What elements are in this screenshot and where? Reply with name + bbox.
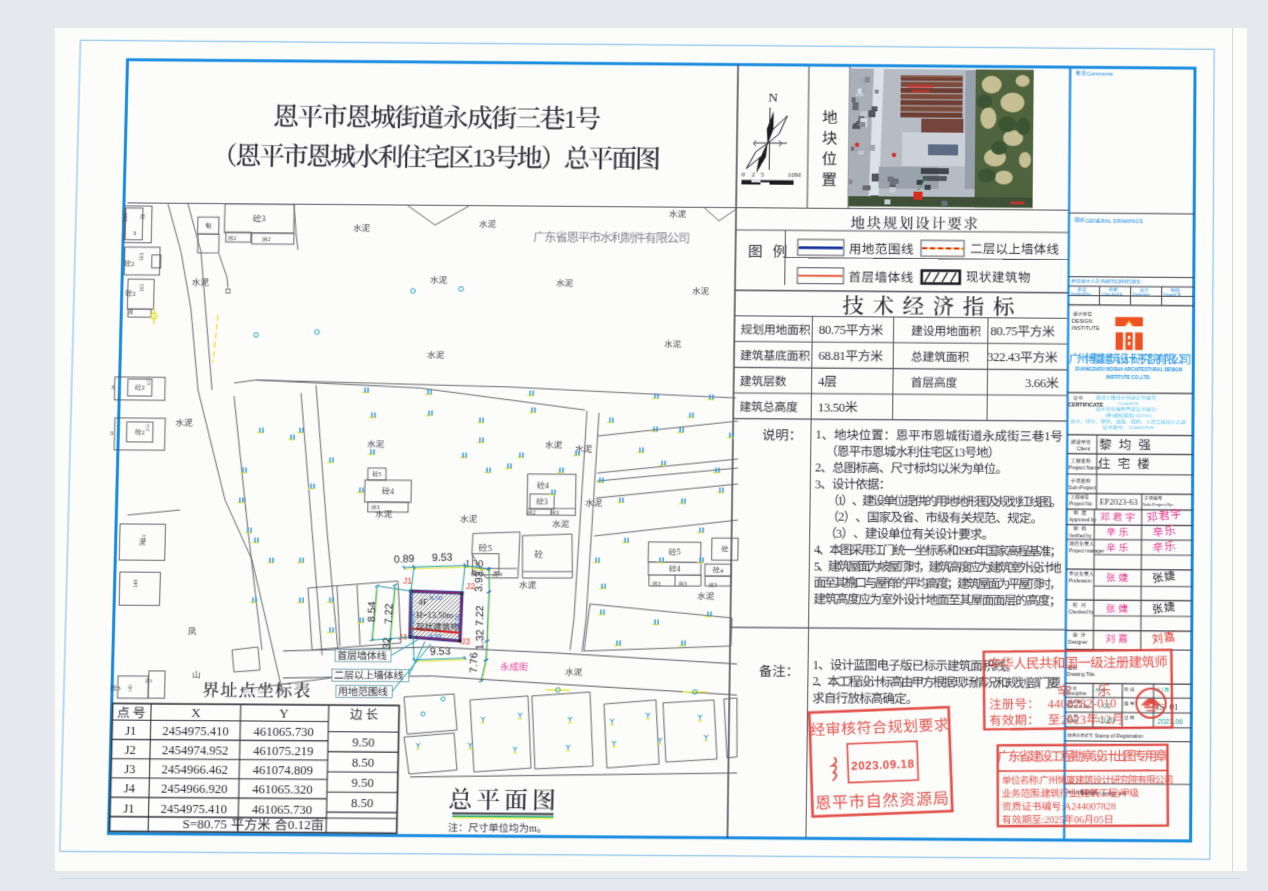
svg-text::: :	[1037, 776, 1039, 786]
svg-text:12: 12	[1099, 712, 1112, 726]
svg-text:2: 2	[131, 260, 135, 268]
svg-text:9.50: 9.50	[429, 632, 442, 640]
svg-text:2: 2	[838, 510, 844, 524]
svg-text:X: X	[191, 706, 202, 720]
svg-text:CERTIFICATE: CERTIFICATE	[1068, 403, 1104, 409]
svg-text:4400782-010: 4400782-010	[1048, 696, 1117, 711]
svg-text:8.50: 8.50	[453, 613, 461, 626]
svg-text:4: 4	[818, 375, 825, 389]
svg-text:4: 4	[677, 564, 681, 573]
svg-text:80.75: 80.75	[990, 325, 1017, 339]
svg-text:J4: J4	[124, 782, 136, 796]
svg-text:80.75: 80.75	[819, 323, 846, 337]
svg-text:13: 13	[954, 445, 966, 459]
svg-text:10M: 10M	[788, 171, 801, 179]
svg-text:9.50: 9.50	[351, 776, 373, 790]
svg-text:Verified by: Verified by	[1070, 291, 1091, 296]
svg-text:7.76: 7.76	[469, 652, 481, 673]
svg-text:322.43: 322.43	[987, 350, 1020, 364]
svg-text:461074.809: 461074.809	[253, 763, 313, 778]
svg-text::A244007828: :A244007828	[1061, 801, 1116, 812]
svg-text:9.50: 9.50	[352, 736, 374, 750]
svg-text:9.53: 9.53	[432, 552, 453, 564]
svg-text:8.50: 8.50	[409, 611, 417, 624]
svg-text:4: 4	[390, 487, 394, 496]
svg-text:INSTITUTE: INSTITUTE	[1072, 326, 1100, 332]
svg-text:1.32: 1.32	[475, 629, 487, 650]
svg-text:Project No.: Project No.	[1069, 502, 1093, 508]
svg-text:Stamp of Registration: Stamp of Registration	[1095, 734, 1144, 740]
svg-text:3: 3	[377, 505, 380, 511]
svg-text:157: 157	[147, 378, 152, 386]
svg-text:2: 2	[150, 679, 153, 684]
svg-text:(141261): (141261)	[1133, 414, 1152, 419]
svg-text:Drawing Title: Drawing Title	[1067, 672, 1095, 678]
svg-text:Profession: Profession	[1069, 579, 1092, 585]
svg-text:(: (	[1078, 788, 1081, 799]
svg-text:EP2023-63: EP2023-63	[1099, 497, 1137, 507]
svg-text:9.50: 9.50	[430, 594, 443, 602]
svg-text:J3: J3	[461, 636, 471, 646]
svg-text:Client: Client	[1077, 447, 1091, 453]
svg-text:Sub-Project: Sub-Project	[1068, 486, 1096, 492]
svg-text:3: 3	[261, 214, 265, 224]
svg-text:3: 3	[544, 497, 548, 506]
svg-text:2454974.952: 2454974.952	[162, 743, 229, 758]
svg-text::2025: :2025	[1042, 815, 1065, 826]
svg-text:163: 163	[139, 253, 145, 261]
svg-text:GUANGZHOU BOSHA ARCHITESTURAL: GUANGZHOU BOSHA ARCHITESTURAL DESIGN	[1075, 367, 1182, 373]
svg-text:Comments: Comments	[1087, 72, 1114, 78]
svg-text:4: 4	[814, 543, 820, 557]
svg-text:151: 151	[141, 534, 147, 543]
svg-text:155: 155	[146, 423, 151, 431]
svg-text:5: 5	[814, 559, 820, 573]
svg-text:2: 2	[233, 236, 236, 242]
svg-text:149: 149	[133, 579, 139, 588]
svg-text:4: 4	[499, 572, 502, 578]
svg-text:1: 1	[815, 428, 821, 442]
svg-text:3: 3	[556, 511, 559, 517]
svg-text:1985: 1985	[957, 544, 976, 558]
svg-text:3.93: 3.93	[474, 571, 486, 592]
svg-text:461065.730: 461065.730	[252, 802, 312, 817]
svg-text:m: m	[529, 823, 537, 834]
svg-text:INSTITUTE CO.,LTD.: INSTITUTE CO.,LTD.	[1106, 375, 1150, 380]
svg-text:7.22: 7.22	[475, 605, 487, 626]
svg-text:3: 3	[658, 581, 661, 587]
svg-text:Project manager: Project manager	[1069, 549, 1105, 555]
svg-text:[: [	[1105, 414, 1107, 419]
svg-text:461075.219: 461075.219	[253, 744, 313, 759]
svg-text:2023.06: 2023.06	[1157, 719, 1183, 726]
svg-text:Sub-Project No.: Sub-Project No.	[1143, 502, 1174, 507]
svg-text:3: 3	[133, 230, 136, 237]
svg-text:2023: 2023	[1060, 713, 1086, 727]
svg-text:68.81: 68.81	[818, 349, 845, 363]
svg-text:2454966.462: 2454966.462	[161, 763, 228, 778]
svg-text:J2: J2	[125, 743, 137, 757]
svg-text:4: 4	[720, 567, 724, 575]
svg-text:3.66: 3.66	[1025, 376, 1046, 390]
svg-text:461065.320: 461065.320	[252, 783, 312, 798]
svg-text:2: 2	[132, 290, 136, 298]
svg-text:2023.09.18: 2023.09.18	[851, 758, 915, 773]
svg-text:J1: J1	[403, 576, 413, 586]
svg-text:145: 145	[128, 684, 134, 692]
svg-text:DESIGN: DESIGN	[1072, 319, 1093, 325]
svg-text:Designer: Designer	[1133, 291, 1151, 296]
svg-text:5: 5	[677, 548, 681, 557]
svg-text:Checked b: Checked b	[1101, 291, 1123, 296]
svg-text:06: 06	[1074, 815, 1084, 826]
svg-text:Project Name: Project Name	[1069, 466, 1101, 472]
svg-text:]: ]	[1111, 414, 1113, 419]
svg-text:Y: Y	[279, 707, 289, 721]
svg-text:3: 3	[836, 526, 842, 540]
svg-text:5: 5	[488, 543, 493, 553]
svg-text:5: 5	[378, 472, 381, 478]
svg-text:1: 1	[1044, 430, 1050, 444]
svg-text:8.54: 8.54	[367, 601, 379, 622]
svg-text:Drawn B: Drawn B	[1164, 292, 1181, 297]
svg-text:): )	[1117, 788, 1120, 799]
svg-text:2: 2	[268, 237, 271, 243]
svg-text:2: 2	[141, 385, 144, 392]
svg-text:5: 5	[761, 171, 765, 179]
svg-text:2454975.410: 2454975.410	[162, 724, 229, 739]
svg-text:165: 165	[123, 213, 129, 222]
svg-text::: :	[1039, 790, 1041, 800]
svg-text:8.50: 8.50	[351, 796, 373, 810]
svg-text:A244007828: A244007828	[1128, 426, 1155, 431]
svg-text:2: 2	[815, 461, 821, 475]
svg-text:J1: J1	[125, 724, 137, 738]
svg-text:Discipline: Discipline	[1067, 691, 1087, 696]
svg-text:0: 0	[742, 171, 746, 179]
svg-text:2: 2	[812, 675, 818, 689]
svg-text:2: 2	[533, 510, 536, 516]
svg-text:4: 4	[545, 481, 549, 490]
svg-text:S=80.75: S=80.75	[182, 818, 227, 833]
svg-text:0.89: 0.89	[394, 554, 415, 566]
svg-text:3: 3	[815, 477, 821, 491]
svg-text:Approved by: Approved by	[1069, 518, 1097, 524]
svg-text:3: 3	[117, 685, 120, 692]
svg-text:161: 161	[139, 283, 145, 291]
svg-text:8.50: 8.50	[352, 756, 374, 770]
svg-text:Designer: Designer	[1068, 640, 1088, 646]
svg-text:3: 3	[684, 582, 687, 588]
svg-text:A1440056: A1440056	[1118, 402, 1140, 407]
svg-text:461065.730: 461065.730	[253, 725, 313, 740]
svg-text:GENERAL DRAWINGS: GENERAL DRAWINGS	[1085, 219, 1143, 225]
svg-text:PARTICIPATORS :: PARTICIPATORS :	[1101, 280, 1143, 286]
svg-text:3: 3	[714, 583, 717, 589]
svg-text:2454975.410: 2454975.410	[160, 801, 227, 816]
svg-text:13: 13	[472, 144, 495, 173]
svg-text:1: 1	[564, 105, 577, 134]
svg-text:7.22: 7.22	[384, 603, 396, 624]
svg-text:J3: J3	[124, 762, 136, 776]
svg-text:H=13.50m: H=13.50m	[416, 610, 454, 620]
svg-text:2: 2	[141, 429, 144, 436]
svg-text:2: 2	[752, 171, 756, 179]
svg-text:Checked by: Checked by	[1068, 610, 1094, 616]
svg-text:13.50: 13.50	[818, 400, 845, 414]
svg-text:3: 3	[110, 429, 114, 437]
svg-text:J1: J1	[123, 801, 135, 815]
svg-text:2454966.920: 2454966.920	[161, 782, 228, 797]
svg-text:0.12: 0.12	[287, 818, 310, 832]
svg-text:05: 05	[1094, 815, 1104, 826]
svg-text:4F: 4F	[418, 597, 428, 607]
svg-text:Verified by: Verified by	[1069, 533, 1092, 539]
svg-text:1: 1	[813, 658, 819, 672]
svg-text:N: N	[768, 91, 778, 105]
